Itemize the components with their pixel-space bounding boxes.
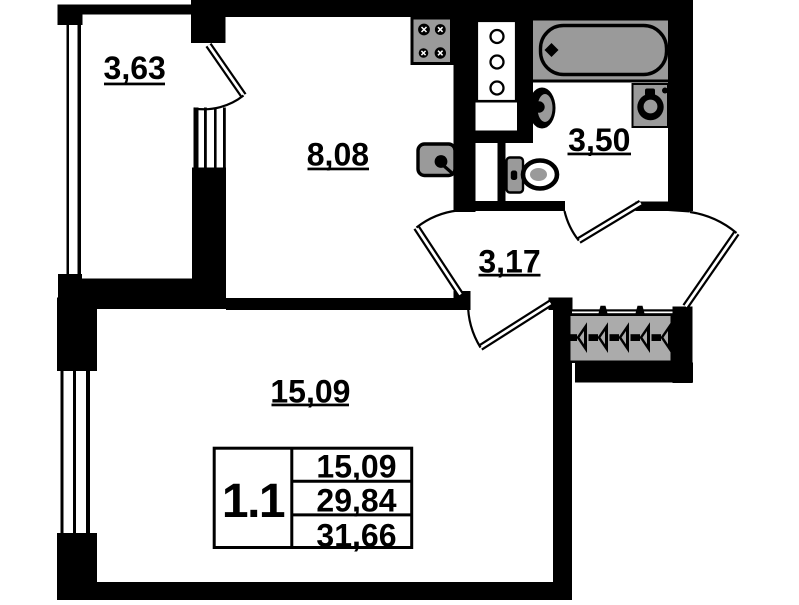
svg-text:8,08: 8,08: [307, 137, 369, 173]
svg-text:31,66: 31,66: [316, 517, 396, 553]
svg-text:3,50: 3,50: [568, 122, 630, 158]
svg-text:29,84: 29,84: [316, 482, 396, 518]
svg-text:3,63: 3,63: [104, 50, 166, 86]
svg-text:1.1: 1.1: [222, 475, 285, 528]
svg-text:15,09: 15,09: [316, 449, 396, 485]
